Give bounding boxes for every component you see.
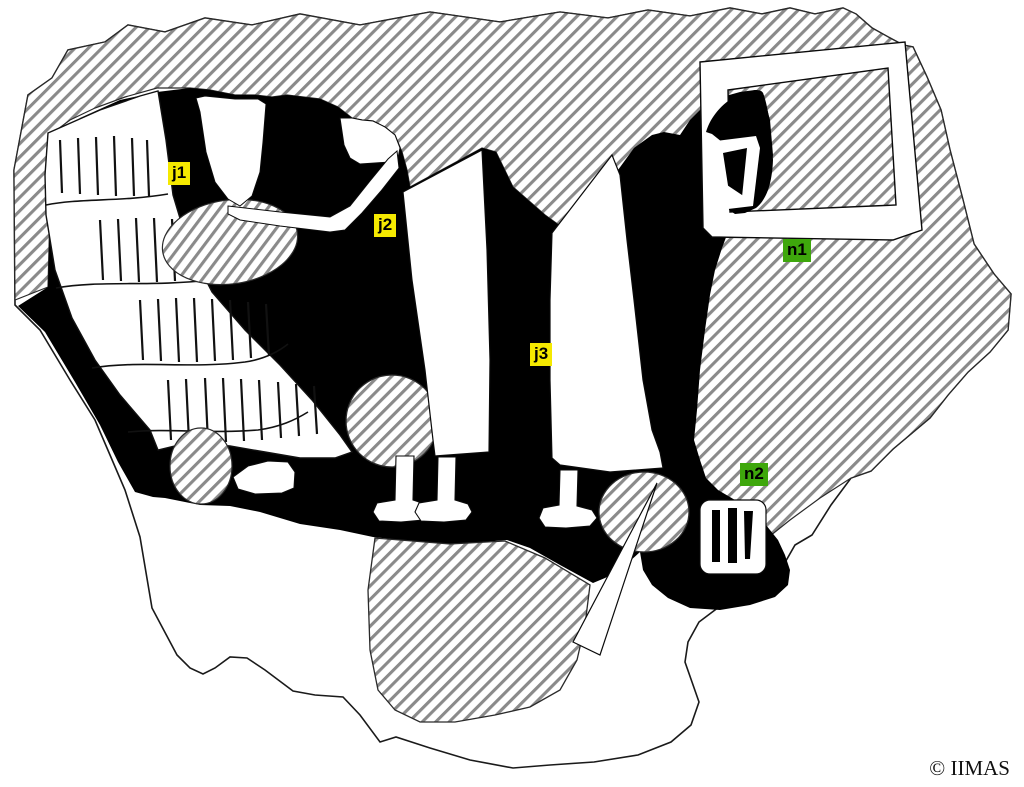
label-j2: j2 [374,214,396,237]
label-j1: j1 [168,162,190,185]
label-j3: j3 [530,343,552,366]
lacuna-circle-center [346,375,438,467]
label-n2: n2 [740,463,768,486]
fragment-drawing: j1 j2 j3 n1 n2 © IIMAS [0,0,1024,787]
copyright-credit: © IIMAS [929,756,1010,781]
grill-bar-1 [712,510,720,562]
fragment-illustration [0,0,1024,787]
label-n1: n1 [783,239,811,262]
grill-bar-2 [728,508,737,563]
grill-motif [700,500,766,574]
lacuna-patch-lower-left [170,428,232,504]
